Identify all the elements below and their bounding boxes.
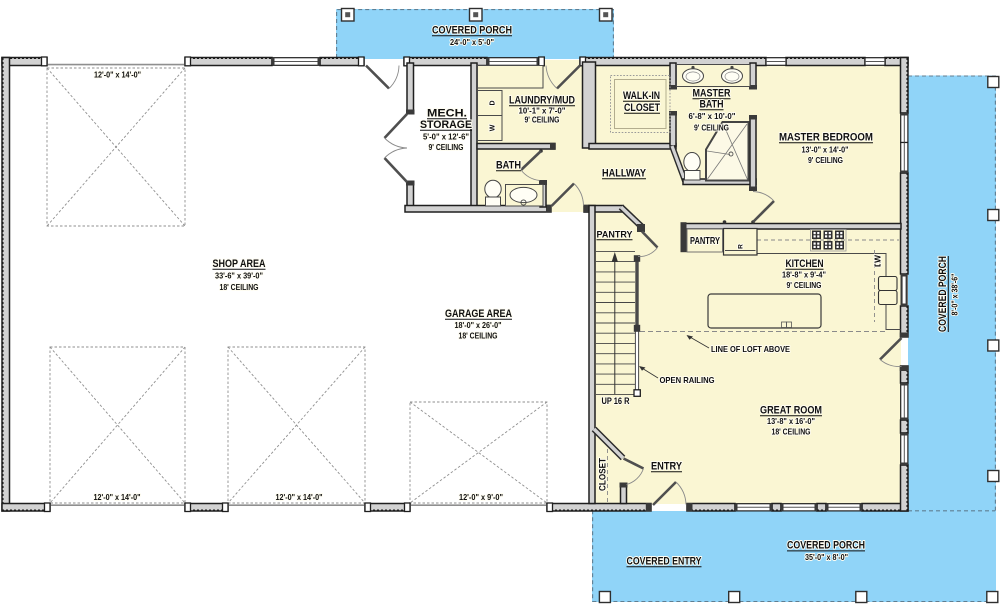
svg-text:LINE OF LOFT ABOVE: LINE OF LOFT ABOVE [711, 344, 790, 354]
svg-text:9' CEILING: 9' CEILING [694, 123, 729, 133]
svg-text:33'-6" x 39'-0": 33'-6" x 39'-0" [215, 271, 263, 281]
svg-text:BATH: BATH [496, 160, 521, 172]
svg-text:CLOSET: CLOSET [624, 102, 660, 114]
svg-text:13'-0" x 14'-0": 13'-0" x 14'-0" [802, 145, 849, 155]
svg-text:BATH: BATH [700, 99, 724, 111]
svg-text:D: D [489, 100, 496, 105]
svg-text:KITCHEN: KITCHEN [786, 258, 824, 270]
svg-text:W: W [489, 124, 496, 131]
svg-text:12'-0" x 9'-0": 12'-0" x 9'-0" [459, 492, 503, 502]
svg-text:9' CEILING: 9' CEILING [429, 142, 464, 152]
svg-text:SHOP AREA: SHOP AREA [213, 258, 266, 270]
svg-text:UP 16 R: UP 16 R [602, 396, 630, 407]
svg-text:COVERED PORCH: COVERED PORCH [432, 25, 512, 37]
svg-text:STORAGE: STORAGE [420, 119, 472, 131]
svg-text:6'-8" x 10'-0": 6'-8" x 10'-0" [689, 111, 736, 121]
svg-text:R: R [738, 244, 745, 249]
svg-text:35'-0" x 8'-0": 35'-0" x 8'-0" [805, 552, 848, 562]
svg-text:HALLWAY: HALLWAY [602, 168, 647, 180]
svg-text:18'-8" x 9'-4": 18'-8" x 9'-4" [782, 270, 826, 280]
svg-text:COVERED PORCH: COVERED PORCH [937, 256, 949, 332]
svg-text:18' CEILING: 18' CEILING [459, 331, 498, 341]
svg-text:18'-0" x 26'-0": 18'-0" x 26'-0" [455, 320, 502, 330]
svg-text:13'-8" x 16'-0": 13'-8" x 16'-0" [767, 416, 815, 426]
svg-text:9' CEILING: 9' CEILING [808, 155, 843, 165]
svg-text:MECH.: MECH. [427, 108, 467, 120]
svg-text:GREAT ROOM: GREAT ROOM [760, 405, 822, 417]
svg-text:MASTER BEDROOM: MASTER BEDROOM [779, 132, 873, 144]
svg-text:18' CEILING: 18' CEILING [220, 282, 259, 292]
svg-text:CLOSET: CLOSET [598, 458, 609, 491]
svg-text:24'-0" x 5'-0": 24'-0" x 5'-0" [450, 37, 494, 47]
svg-text:9' CEILING: 9' CEILING [787, 280, 822, 290]
svg-text:9' CEILING: 9' CEILING [525, 115, 560, 125]
svg-text:PANTRY: PANTRY [690, 236, 720, 247]
svg-text:PANTRY: PANTRY [597, 230, 634, 241]
svg-text:COVERED PORCH: COVERED PORCH [787, 540, 865, 552]
svg-text:12'-0" x 14'-0": 12'-0" x 14'-0" [94, 492, 141, 502]
svg-text:18' CEILING: 18' CEILING [772, 427, 811, 437]
svg-text:GARAGE AREA: GARAGE AREA [445, 308, 512, 320]
svg-text:5'-0" x 12'-6": 5'-0" x 12'-6" [423, 132, 469, 142]
svg-text:WALK-IN: WALK-IN [623, 90, 660, 102]
svg-text:COVERED ENTRY: COVERED ENTRY [627, 555, 703, 567]
svg-text:ENTRY: ENTRY [651, 461, 683, 473]
svg-text:8'-0" x 38'-6": 8'-0" x 38'-6" [950, 273, 960, 315]
svg-text:OPEN RAILING: OPEN RAILING [660, 375, 715, 385]
svg-text:12'-0" x 14'-0": 12'-0" x 14'-0" [94, 70, 141, 80]
svg-text:12'-0" x 14'-0": 12'-0" x 14'-0" [276, 492, 323, 502]
svg-text:D/W: D/W [873, 255, 883, 267]
